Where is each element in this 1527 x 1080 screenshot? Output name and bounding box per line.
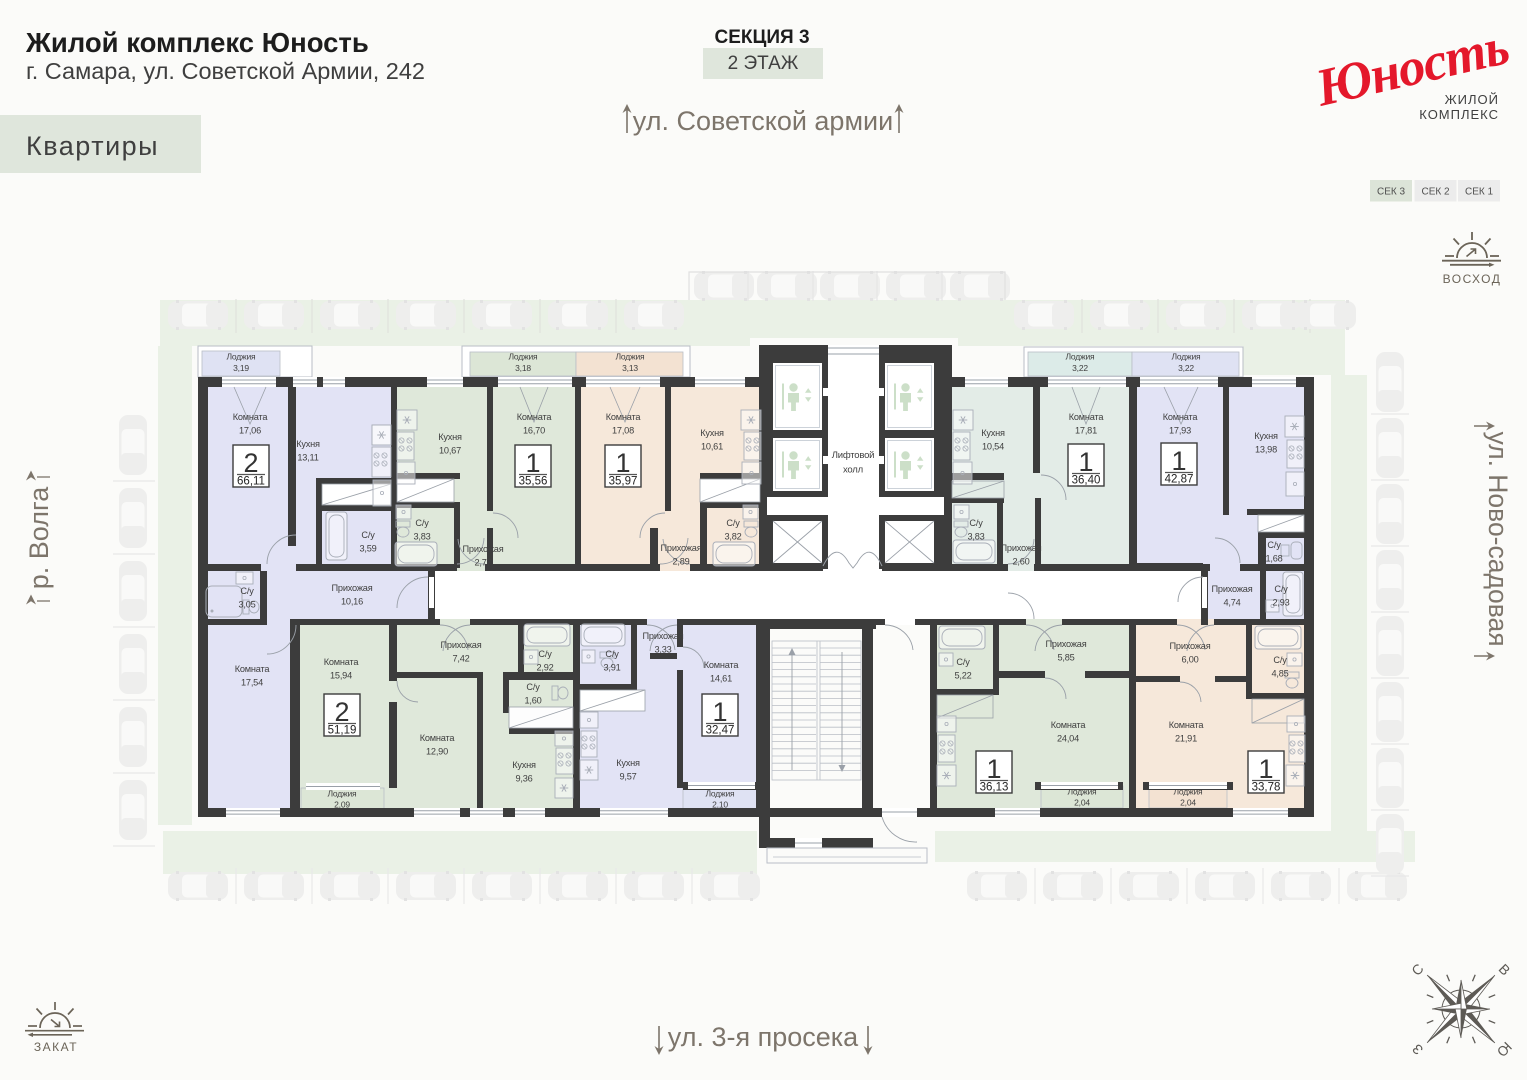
svg-text:Комната: Комната xyxy=(704,660,740,670)
svg-text:Прихожая: Прихожая xyxy=(332,583,373,593)
svg-text:17,06: 17,06 xyxy=(239,426,261,436)
svg-text:Лоджия: Лоджия xyxy=(1172,352,1202,362)
svg-text:3,83: 3,83 xyxy=(967,532,984,542)
svg-text:1: 1 xyxy=(1078,447,1093,477)
svg-text:С/у: С/у xyxy=(1273,655,1287,665)
svg-text:5,22: 5,22 xyxy=(954,671,971,681)
svg-text:1: 1 xyxy=(615,448,630,478)
svg-text:Лоджия: Лоджия xyxy=(616,352,646,362)
svg-text:Прихожая: Прихожая xyxy=(643,631,684,641)
svg-text:Лоджия: Лоджия xyxy=(1066,352,1096,362)
svg-text:35,56: 35,56 xyxy=(519,476,548,488)
svg-text:21,91: 21,91 xyxy=(1175,734,1197,744)
svg-text:2,89: 2,89 xyxy=(672,557,689,567)
svg-text:С/у: С/у xyxy=(726,518,740,528)
svg-text:С/у: С/у xyxy=(361,530,375,540)
svg-text:6,00: 6,00 xyxy=(1181,655,1198,665)
svg-text:51,19: 51,19 xyxy=(328,725,357,737)
svg-text:Квартиры: Квартиры xyxy=(26,131,159,161)
svg-text:Кухня: Кухня xyxy=(512,760,536,770)
svg-text:СЕКЦИЯ 3: СЕКЦИЯ 3 xyxy=(714,27,809,48)
svg-text:33,78: 33,78 xyxy=(1252,782,1281,794)
svg-text:17,54: 17,54 xyxy=(241,678,263,688)
svg-text:2,92: 2,92 xyxy=(536,663,553,673)
svg-text:32,47: 32,47 xyxy=(706,725,735,737)
svg-text:С/у: С/у xyxy=(969,518,983,528)
svg-text:3,13: 3,13 xyxy=(622,363,638,373)
svg-text:3,33: 3,33 xyxy=(654,645,671,655)
svg-text:С/у: С/у xyxy=(538,649,552,659)
svg-text:36,13: 36,13 xyxy=(980,782,1009,794)
svg-text:1: 1 xyxy=(1171,446,1186,476)
svg-text:Прихожая: Прихожая xyxy=(441,640,482,650)
svg-text:Комната: Комната xyxy=(420,733,456,743)
svg-text:ЖИЛОЙ: ЖИЛОЙ xyxy=(1445,92,1499,107)
svg-text:С/у: С/у xyxy=(605,649,619,659)
svg-text:Прихожая: Прихожая xyxy=(1170,641,1211,651)
svg-text:г. Самара, ул. Советской Армии: г. Самара, ул. Советской Армии, 242 xyxy=(26,58,425,84)
svg-text:Кухня: Кухня xyxy=(1254,431,1278,441)
svg-text:Комната: Комната xyxy=(1051,720,1087,730)
svg-text:2,04: 2,04 xyxy=(1180,798,1196,808)
svg-text:35,97: 35,97 xyxy=(609,476,638,488)
svg-text:2,60: 2,60 xyxy=(1012,557,1029,567)
svg-text:3,18: 3,18 xyxy=(515,363,531,373)
svg-text:Кухня: Кухня xyxy=(296,439,320,449)
svg-text:2,04: 2,04 xyxy=(1074,798,1090,808)
svg-text:10,67: 10,67 xyxy=(439,446,461,456)
svg-text:16,70: 16,70 xyxy=(523,426,545,436)
svg-text:1,68: 1,68 xyxy=(1265,554,1282,564)
svg-text:С/у: С/у xyxy=(415,518,429,528)
svg-text:Прихожая: Прихожая xyxy=(1046,639,1087,649)
svg-text:3,59: 3,59 xyxy=(359,544,376,554)
svg-text:10,61: 10,61 xyxy=(701,442,723,452)
svg-text:3,19: 3,19 xyxy=(233,363,249,373)
svg-text:1: 1 xyxy=(712,697,727,727)
svg-text:9,36: 9,36 xyxy=(515,774,532,784)
svg-text:36,40: 36,40 xyxy=(1072,475,1101,487)
svg-text:15,94: 15,94 xyxy=(330,671,352,681)
svg-text:5,85: 5,85 xyxy=(1057,653,1074,663)
svg-text:4,85: 4,85 xyxy=(1271,669,1288,679)
svg-text:С/у: С/у xyxy=(1274,584,1288,594)
svg-text:Прихожая: Прихожая xyxy=(661,543,702,553)
svg-text:17,08: 17,08 xyxy=(612,426,634,436)
svg-text:ЗАКАТ: ЗАКАТ xyxy=(34,1040,78,1054)
svg-text:Жилой комплекс Юность: Жилой комплекс Юность xyxy=(25,27,369,58)
svg-text:СЕК 2: СЕК 2 xyxy=(1421,187,1449,198)
svg-text:13,98: 13,98 xyxy=(1255,445,1277,455)
svg-text:3,22: 3,22 xyxy=(1072,363,1088,373)
svg-text:Прихожая: Прихожая xyxy=(463,544,504,554)
svg-text:Комната: Комната xyxy=(233,412,269,422)
svg-text:С/у: С/у xyxy=(526,682,540,692)
svg-text:Комната: Комната xyxy=(1069,412,1105,422)
svg-text:ул. 3-я просека: ул. 3-я просека xyxy=(668,1022,859,1052)
svg-text:С/у: С/у xyxy=(1267,540,1281,550)
svg-text:3,22: 3,22 xyxy=(1178,363,1194,373)
svg-text:17,93: 17,93 xyxy=(1169,426,1191,436)
svg-text:3,91: 3,91 xyxy=(603,663,620,673)
svg-text:9,57: 9,57 xyxy=(619,772,636,782)
svg-text:42,87: 42,87 xyxy=(1165,474,1194,486)
svg-text:ул. Советской армии: ул. Советской армии xyxy=(633,106,893,136)
svg-text:Лоджия: Лоджия xyxy=(509,352,539,362)
svg-text:р. Волга: р. Волга xyxy=(24,486,54,589)
svg-text:13,11: 13,11 xyxy=(297,453,318,463)
svg-text:ул. Ново-садовая: ул. Ново-садовая xyxy=(1483,431,1513,646)
svg-text:СЕК 1: СЕК 1 xyxy=(1465,187,1493,198)
svg-text:24,04: 24,04 xyxy=(1057,734,1079,744)
svg-text:Комната: Комната xyxy=(1169,720,1205,730)
svg-text:холл: холл xyxy=(843,465,863,476)
svg-text:1: 1 xyxy=(525,448,540,478)
svg-text:14,61: 14,61 xyxy=(710,674,732,684)
svg-text:ВОСХОД: ВОСХОД xyxy=(1443,272,1502,286)
svg-text:КОМПЛЕКС: КОМПЛЕКС xyxy=(1419,107,1499,122)
svg-text:Прихожая: Прихожая xyxy=(1001,543,1042,553)
svg-text:Комната: Комната xyxy=(517,412,553,422)
svg-text:2 ЭТАЖ: 2 ЭТАЖ xyxy=(728,53,799,74)
svg-text:Комната: Комната xyxy=(606,412,642,422)
svg-text:66,11: 66,11 xyxy=(237,476,265,488)
svg-text:Лоджия: Лоджия xyxy=(227,352,257,362)
svg-text:Прихожая: Прихожая xyxy=(1212,584,1253,594)
svg-text:3,05: 3,05 xyxy=(238,600,255,610)
svg-text:Кухня: Кухня xyxy=(981,428,1005,438)
svg-text:2: 2 xyxy=(334,697,349,727)
svg-text:Комната: Комната xyxy=(235,664,271,674)
svg-text:2,93: 2,93 xyxy=(1272,598,1289,608)
svg-text:17,81: 17,81 xyxy=(1075,426,1097,436)
svg-text:1,60: 1,60 xyxy=(524,696,541,706)
svg-text:12,90: 12,90 xyxy=(426,747,448,757)
svg-text:3,83: 3,83 xyxy=(413,532,430,542)
svg-text:3,82: 3,82 xyxy=(724,532,741,542)
svg-text:Комната: Комната xyxy=(1163,412,1199,422)
svg-text:2: 2 xyxy=(243,448,258,478)
svg-text:2,77: 2,77 xyxy=(474,558,491,568)
svg-text:7,42: 7,42 xyxy=(452,654,469,664)
svg-text:Кухня: Кухня xyxy=(616,758,640,768)
svg-text:1: 1 xyxy=(1258,754,1273,784)
svg-text:СЕК 3: СЕК 3 xyxy=(1377,187,1405,198)
svg-text:1: 1 xyxy=(986,754,1001,784)
svg-text:Кухня: Кухня xyxy=(700,428,724,438)
svg-text:Кухня: Кухня xyxy=(438,432,462,442)
svg-text:10,54: 10,54 xyxy=(982,442,1004,452)
svg-text:С/у: С/у xyxy=(956,657,970,667)
svg-text:С/у: С/у xyxy=(240,586,254,596)
svg-text:10,16: 10,16 xyxy=(341,597,363,607)
svg-text:Комната: Комната xyxy=(324,657,360,667)
svg-text:Лифтовой: Лифтовой xyxy=(832,450,875,461)
svg-text:4,74: 4,74 xyxy=(1223,598,1240,608)
